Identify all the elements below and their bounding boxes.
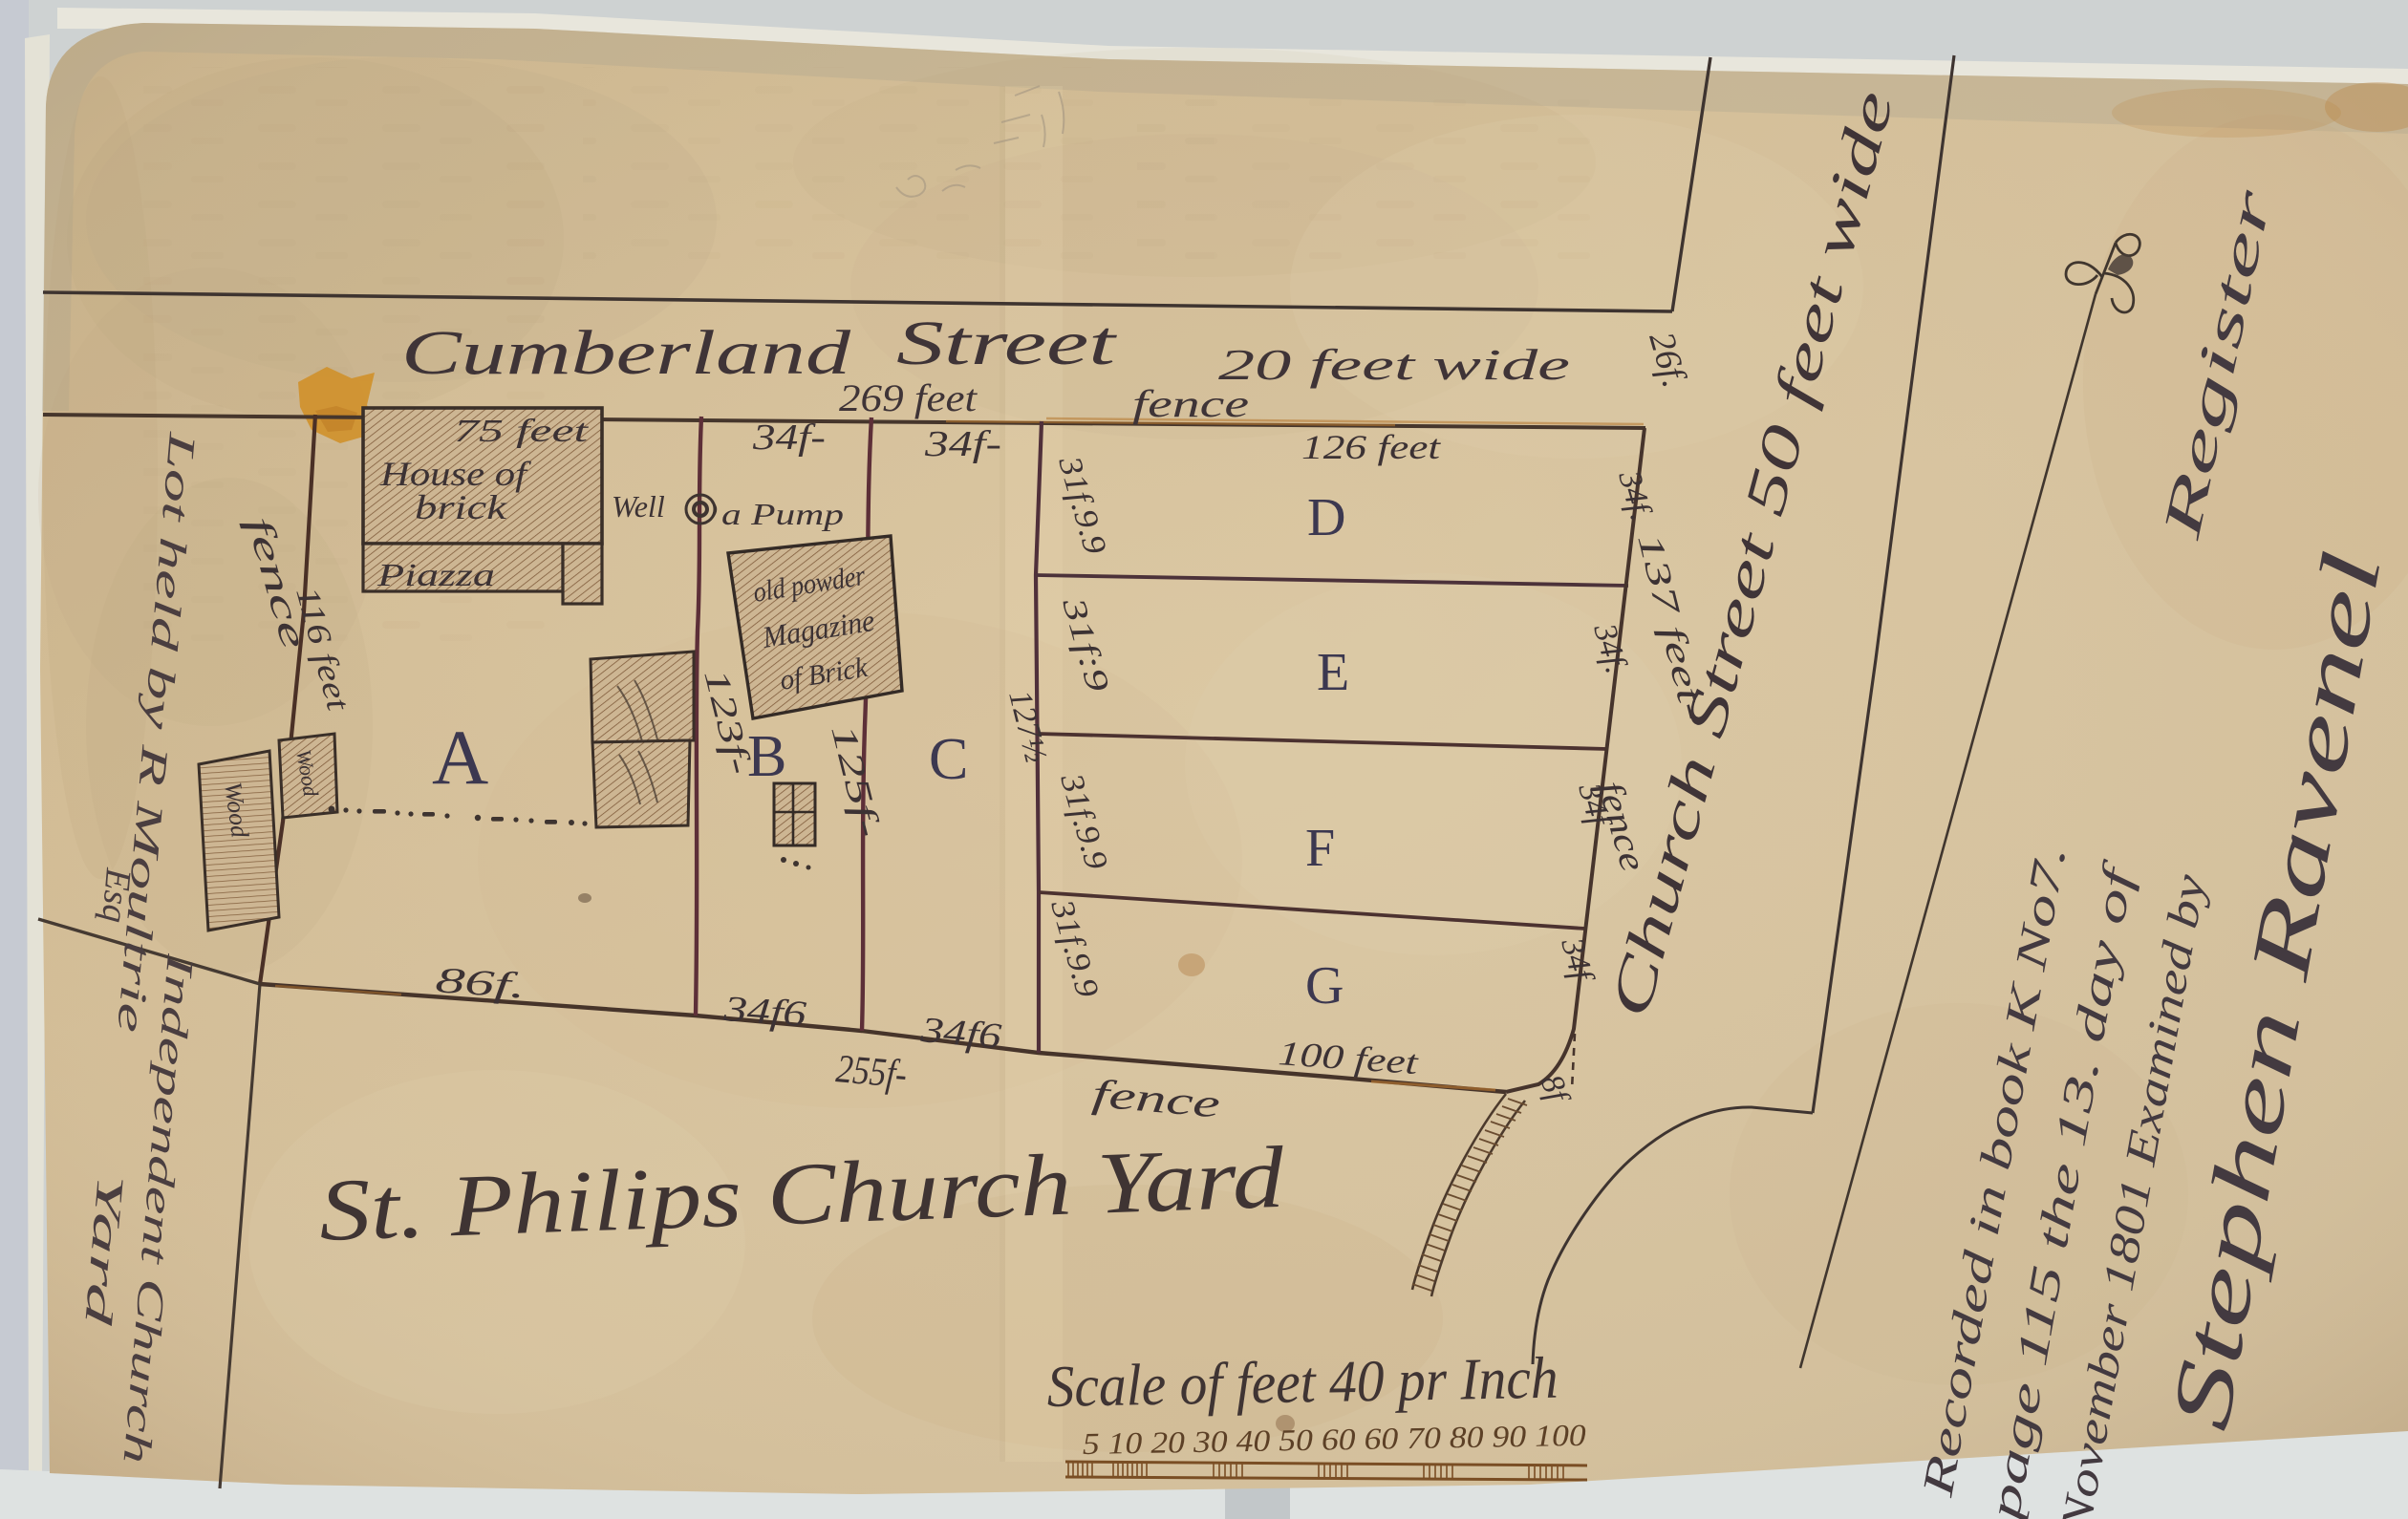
svg-text:House of: House of — [379, 455, 532, 493]
svg-text:Esq: Esq — [94, 866, 139, 924]
svg-text:75 feet: 75 feet — [454, 414, 590, 449]
svg-text:34f6: 34f6 — [918, 1010, 1003, 1057]
svg-text:D: D — [1307, 488, 1345, 547]
svg-text:126 feet: 126 feet — [1301, 428, 1441, 466]
svg-text:E: E — [1317, 643, 1349, 702]
svg-text:34f6: 34f6 — [721, 989, 807, 1035]
svg-text:86f.: 86f. — [434, 960, 527, 1006]
svg-text:C: C — [929, 727, 968, 792]
svg-text:20 feet wide: 20 feet wide — [1218, 340, 1570, 389]
svg-text:Well: Well — [612, 489, 665, 524]
svg-text:269 feet: 269 feet — [839, 376, 978, 419]
svg-text:G: G — [1305, 956, 1344, 1016]
svg-text:34f-: 34f- — [924, 424, 1001, 464]
svg-text:Piazza: Piazza — [376, 558, 495, 593]
svg-text:255f-: 255f- — [834, 1047, 909, 1097]
svg-text:fence: fence — [1132, 382, 1249, 425]
svg-text:brick: brick — [415, 488, 507, 526]
svg-text:Scale of feet 40 pr Inch: Scale of feet 40 pr Inch — [1046, 1346, 1559, 1420]
svg-text:Cumberland: Cumberland — [401, 318, 851, 388]
svg-text:F: F — [1305, 819, 1335, 878]
svg-text:34f-: 34f- — [752, 417, 826, 458]
svg-text:A: A — [432, 714, 488, 801]
svg-text:Street: Street — [896, 309, 1118, 378]
svg-text:a Pump: a Pump — [721, 497, 844, 531]
